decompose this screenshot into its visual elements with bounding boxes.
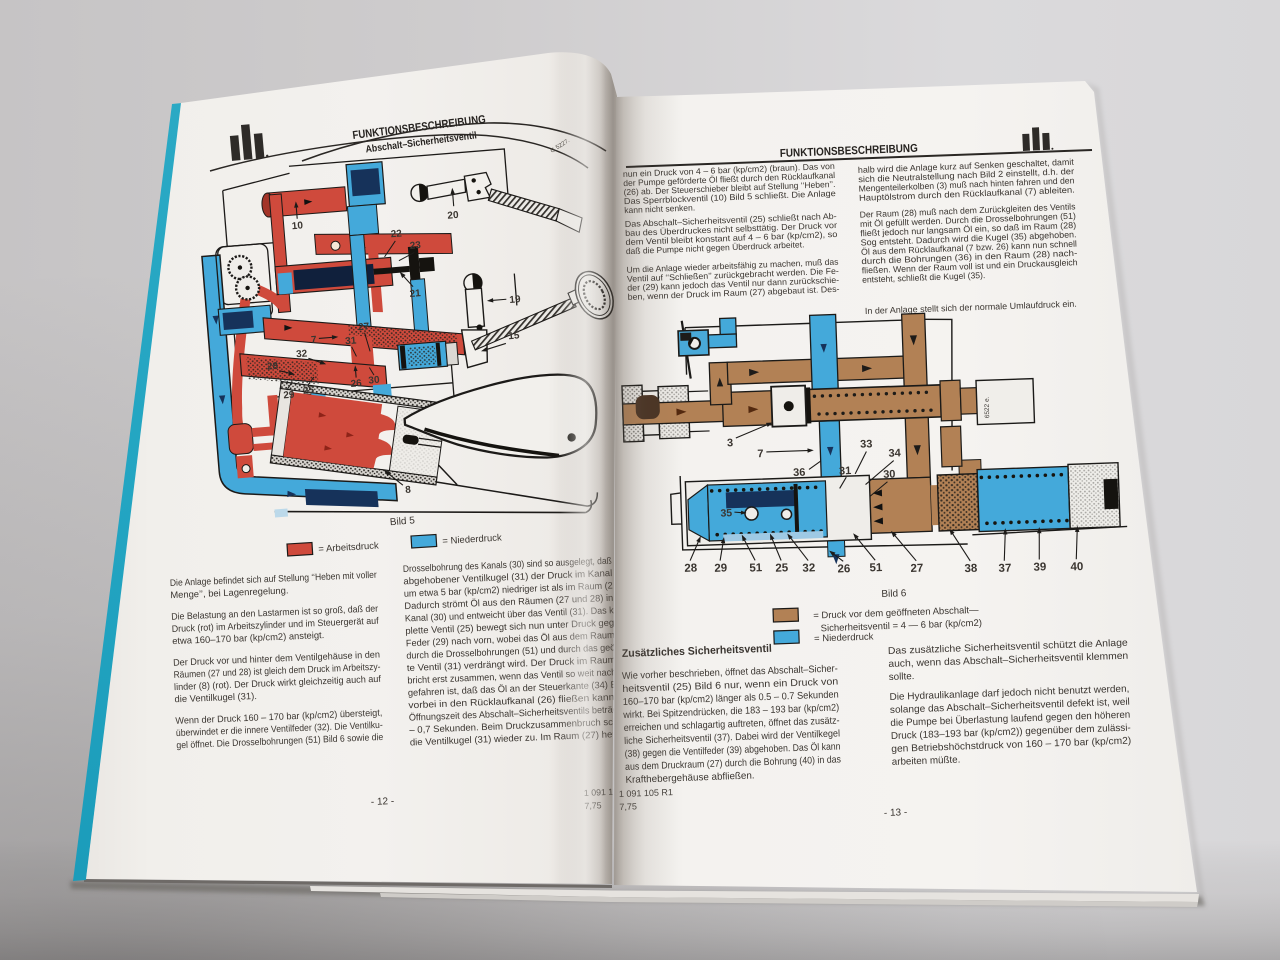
svg-text:Bild 6: Bild 6: [881, 588, 907, 600]
svg-text:6522 e.: 6522 e.: [984, 396, 992, 418]
svg-text:26: 26: [350, 378, 362, 390]
svg-text:7: 7: [757, 448, 764, 460]
svg-text:20: 20: [447, 210, 459, 222]
svg-text:21: 21: [409, 288, 421, 300]
svg-text:34: 34: [888, 447, 902, 459]
svg-text:38: 38: [964, 563, 978, 575]
svg-text:29: 29: [283, 390, 295, 402]
svg-text:25: 25: [775, 562, 789, 574]
svg-text:10: 10: [291, 220, 303, 232]
svg-text:40: 40: [1070, 561, 1083, 573]
svg-text:27: 27: [910, 563, 923, 575]
svg-text:28: 28: [684, 562, 698, 574]
svg-text:31: 31: [345, 335, 357, 347]
svg-text:Bild 5: Bild 5: [389, 515, 415, 528]
svg-text:31: 31: [839, 465, 852, 477]
svg-text:- 13 -: - 13 -: [884, 807, 908, 819]
svg-text:30: 30: [883, 468, 896, 480]
svg-text:22: 22: [390, 228, 402, 240]
svg-text:36: 36: [793, 467, 806, 479]
svg-text:3: 3: [727, 437, 734, 449]
svg-text:- 12 -: - 12 -: [371, 796, 395, 808]
svg-text:19: 19: [509, 294, 521, 306]
svg-text:15: 15: [508, 330, 520, 342]
svg-text:51: 51: [749, 562, 763, 574]
svg-text:51: 51: [869, 562, 883, 574]
svg-text:23: 23: [409, 240, 421, 252]
svg-text:28: 28: [267, 361, 279, 373]
svg-text:sollte.: sollte.: [889, 671, 915, 683]
svg-text:37: 37: [998, 562, 1011, 574]
svg-text:29: 29: [714, 562, 727, 574]
svg-text:30: 30: [368, 375, 380, 387]
svg-text:32: 32: [802, 562, 815, 574]
svg-text:35: 35: [720, 507, 732, 519]
svg-text:26: 26: [837, 563, 850, 575]
svg-text:32: 32: [296, 348, 308, 360]
svg-text:33: 33: [860, 438, 873, 450]
svg-text:25: 25: [303, 385, 315, 397]
svg-text:27: 27: [358, 321, 370, 333]
svg-text:= Niederdruck: = Niederdruck: [814, 632, 874, 645]
svg-text:39: 39: [1033, 561, 1046, 573]
